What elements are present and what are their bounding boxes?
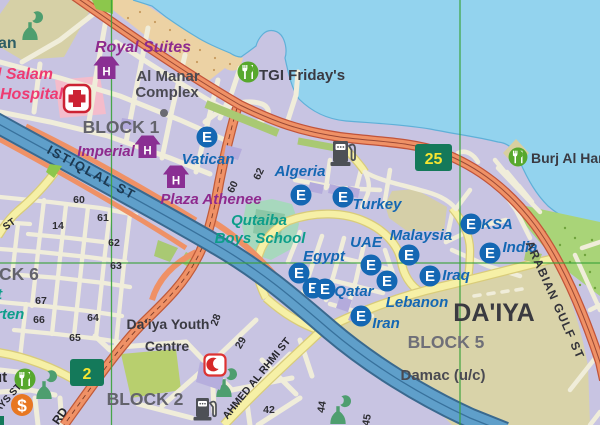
svg-text:Burj Al Hamam: Burj Al Hamam xyxy=(531,150,600,166)
svg-text:E: E xyxy=(404,247,414,264)
svg-text:DA'IYA: DA'IYA xyxy=(453,299,534,327)
svg-text:Qatar: Qatar xyxy=(334,283,374,300)
svg-text:Hospital: Hospital xyxy=(0,86,64,103)
svg-text:60: 60 xyxy=(73,194,85,206)
svg-text:Boys School: Boys School xyxy=(215,230,307,247)
svg-text:25: 25 xyxy=(425,151,443,168)
svg-text:an: an xyxy=(0,35,17,52)
svg-text:Imperial: Imperial xyxy=(77,143,135,160)
svg-text:ut: ut xyxy=(0,369,7,386)
svg-text:E: E xyxy=(382,273,392,290)
svg-text:E: E xyxy=(338,189,348,206)
svg-text:Da'iya Youth: Da'iya Youth xyxy=(127,316,210,332)
svg-text:KSA: KSA xyxy=(481,216,513,233)
svg-text:E: E xyxy=(425,268,435,285)
svg-text:61: 61 xyxy=(97,212,109,224)
svg-text:BLOCK 2: BLOCK 2 xyxy=(107,389,184,409)
svg-text:65: 65 xyxy=(69,332,81,344)
svg-text:E: E xyxy=(366,257,376,274)
svg-text:Qutaiba: Qutaiba xyxy=(231,212,287,229)
svg-text:E: E xyxy=(296,187,306,204)
svg-text:Complex: Complex xyxy=(135,84,199,101)
svg-text:Turkey: Turkey xyxy=(353,196,403,213)
svg-text:BLOCK 1: BLOCK 1 xyxy=(83,117,160,137)
svg-text:BLOCK 6: BLOCK 6 xyxy=(0,264,39,284)
svg-text:62: 62 xyxy=(108,237,120,249)
svg-text:Iraq: Iraq xyxy=(442,267,470,284)
svg-text:E: E xyxy=(320,281,330,298)
svg-text:UAE: UAE xyxy=(350,234,383,251)
svg-text:rten: rten xyxy=(0,306,24,323)
svg-text:42: 42 xyxy=(263,404,275,416)
svg-text:E: E xyxy=(466,216,476,233)
svg-text:Centre: Centre xyxy=(145,338,190,354)
svg-text:66: 66 xyxy=(33,314,45,326)
svg-text:E: E xyxy=(485,245,495,262)
svg-text:Damac (u/c): Damac (u/c) xyxy=(400,367,485,384)
svg-text:Plaza Athenee: Plaza Athenee xyxy=(160,191,261,208)
svg-text:E: E xyxy=(356,308,366,325)
svg-text:Iran: Iran xyxy=(372,315,400,332)
svg-text:Algeria: Algeria xyxy=(274,163,326,180)
svg-text:67: 67 xyxy=(35,295,47,307)
svg-text:14: 14 xyxy=(52,220,64,232)
svg-text:E: E xyxy=(294,265,304,282)
svg-text:TGI Friday's: TGI Friday's xyxy=(259,67,345,84)
svg-text:Vatican: Vatican xyxy=(182,151,235,168)
svg-text:2: 2 xyxy=(83,366,92,383)
svg-text:$: $ xyxy=(17,396,27,416)
svg-text:64: 64 xyxy=(87,312,99,324)
svg-text:l Salam: l Salam xyxy=(0,66,53,83)
svg-text:Egypt: Egypt xyxy=(303,248,346,265)
svg-text:44: 44 xyxy=(315,400,329,414)
svg-text:BLOCK 5: BLOCK 5 xyxy=(408,332,485,352)
svg-text:Royal Suites: Royal Suites xyxy=(95,39,191,56)
svg-text:Lebanon: Lebanon xyxy=(386,294,449,311)
svg-text:Al Manar: Al Manar xyxy=(136,68,200,85)
svg-text:E: E xyxy=(202,129,212,146)
svg-text:Malaysia: Malaysia xyxy=(390,227,453,244)
svg-text:63: 63 xyxy=(110,260,122,272)
